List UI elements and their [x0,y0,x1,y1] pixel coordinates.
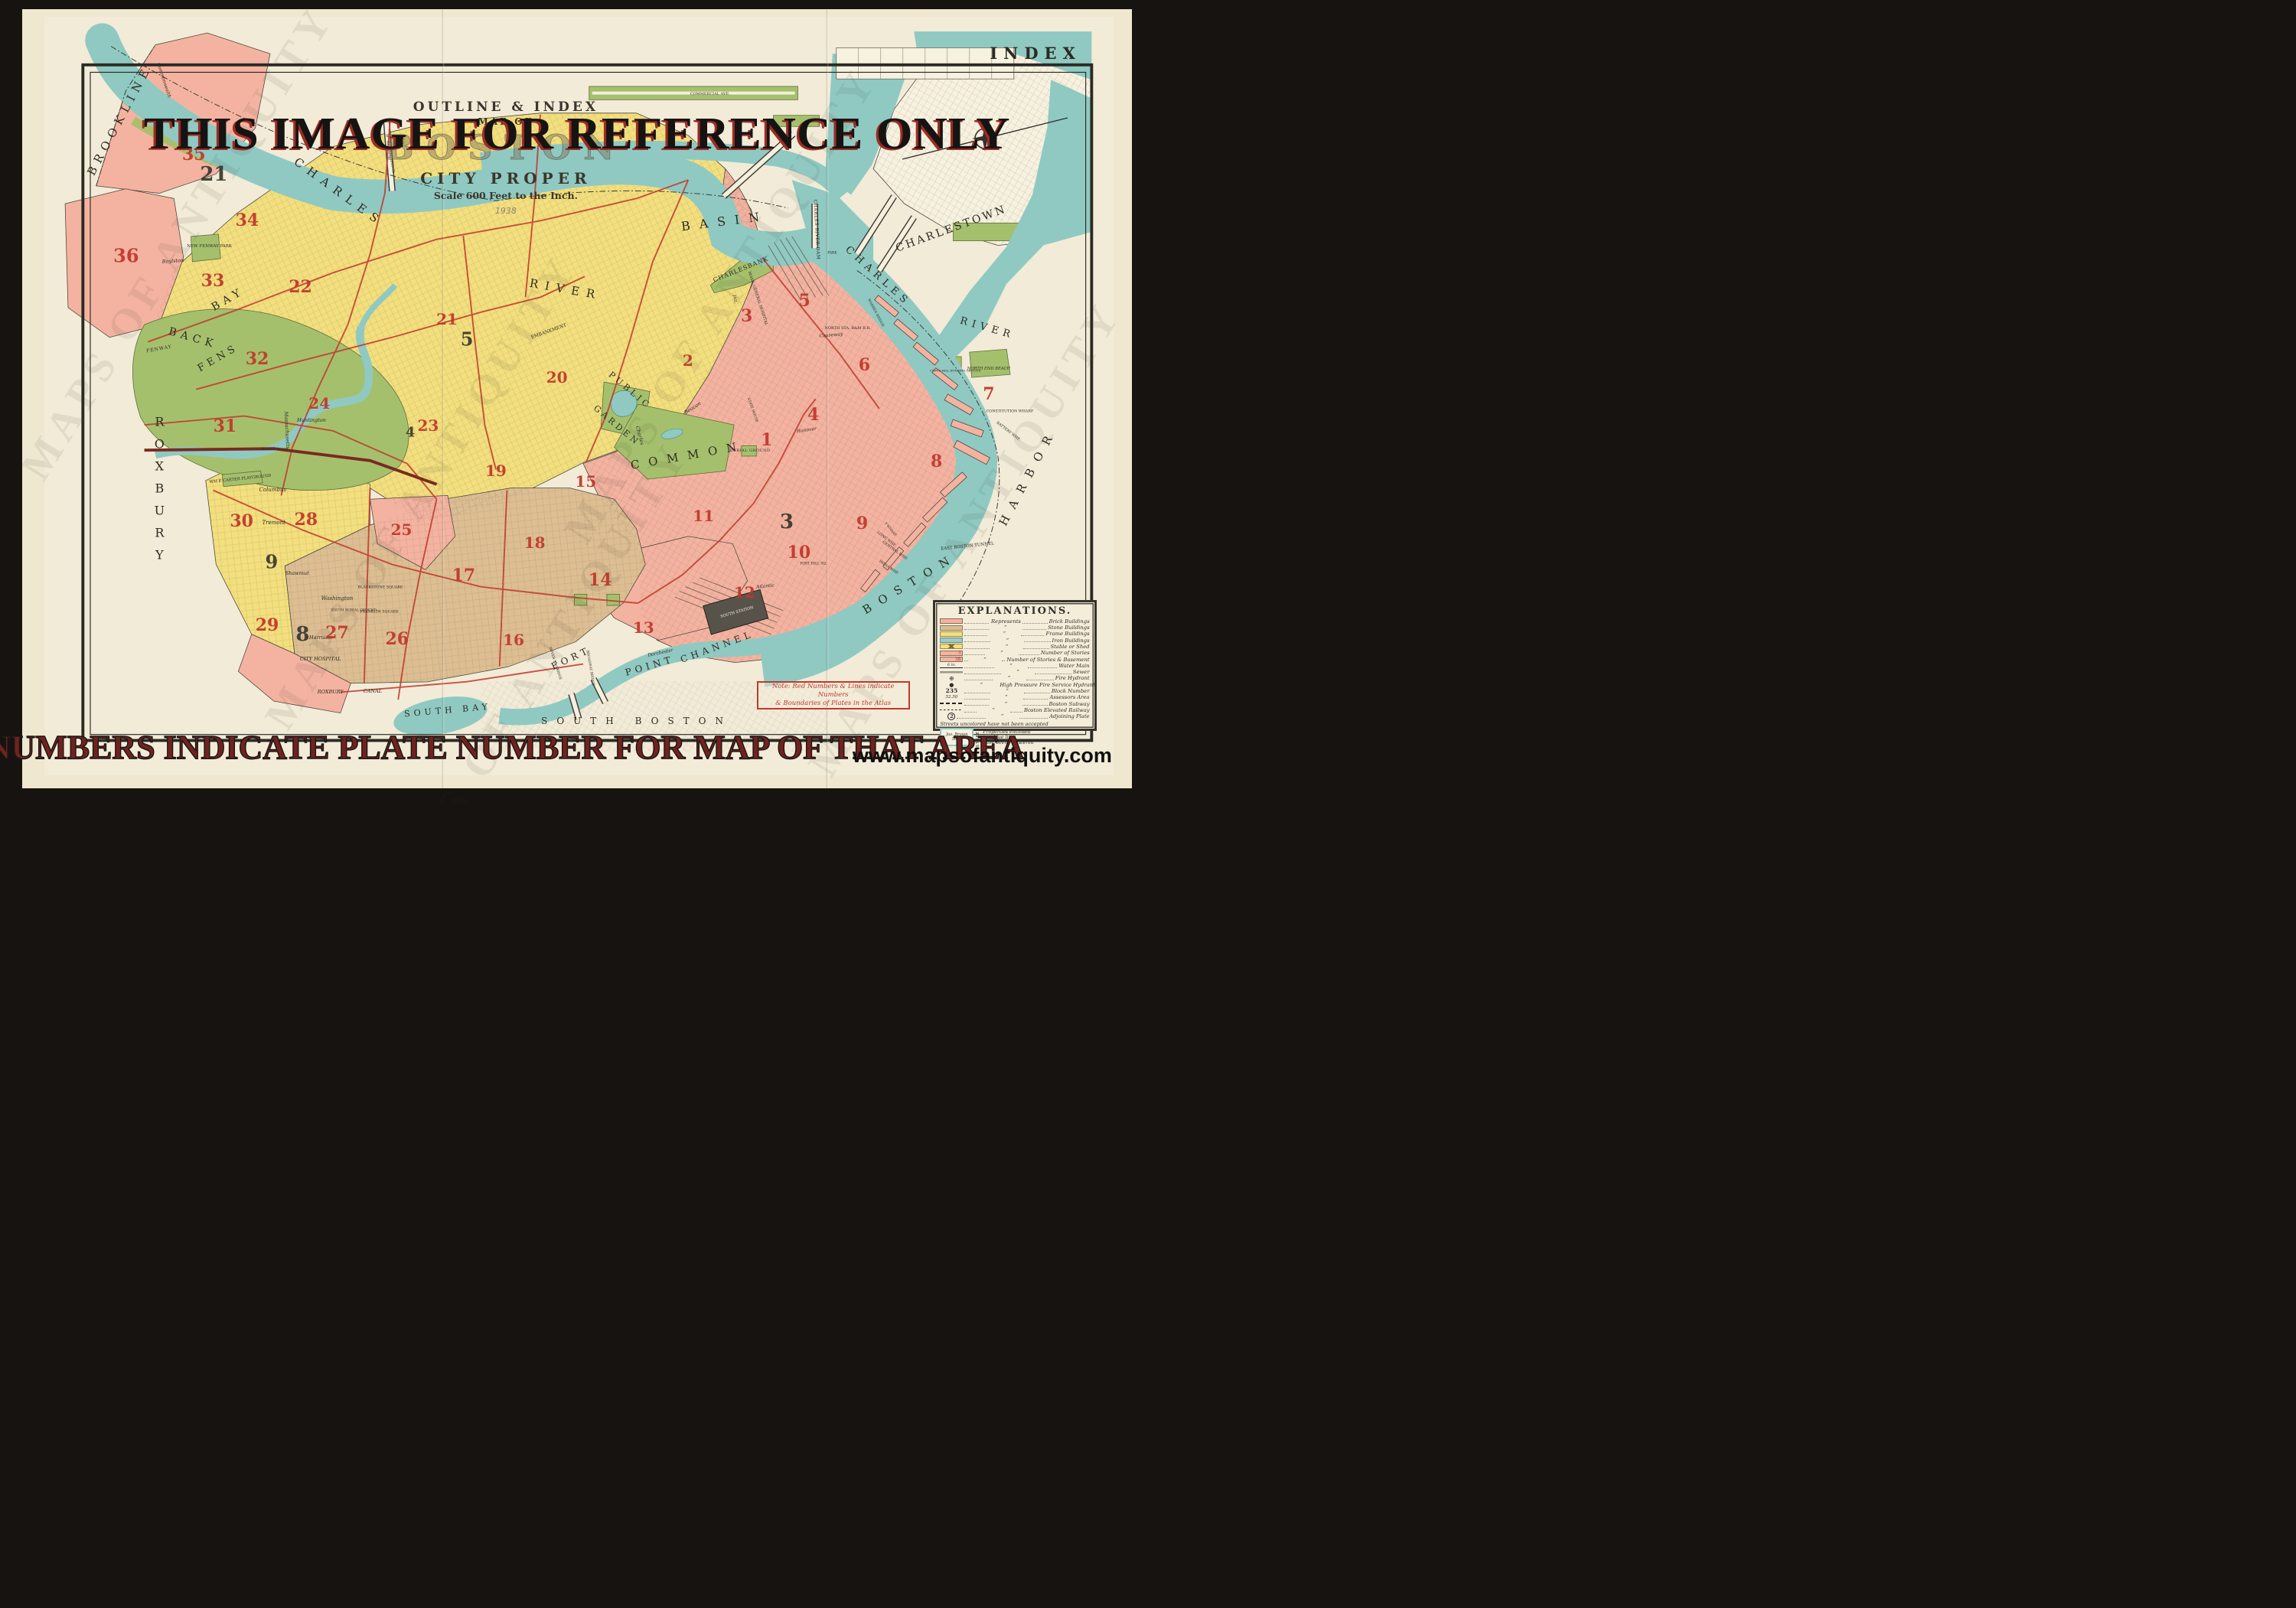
legend-label: Number of Stories [1041,650,1090,656]
legend-swatch-stories: 3 [940,651,963,656]
title-city-proper: CITY PROPER [345,169,667,188]
legend-title: EXPLANATIONS. [940,605,1089,617]
atlas-note-box: Note: Red Numbers & Lines indicate Numbe… [757,681,910,710]
legend-ditto: ” [996,663,1026,669]
watermark-url: www.mapsofantiquity.com [853,744,1112,768]
legend-swatch-hydrant: ⊕ [940,676,963,681]
legend-label: Boston Subway [1049,701,1090,707]
pencil-year: 1938 [345,206,667,216]
legend-rows: RepresentsBrick Buildings”Stone Building… [940,618,1089,720]
title-scale: Scale 600 Feet to the Inch. [345,190,667,201]
mystic-piers [836,47,1013,79]
park-blackstone-square [574,594,586,605]
legend-ditto: Represents [990,618,1021,625]
park-north-end-beach [969,349,1009,377]
scanned-map-page: BROOKLINECHARLESRIVERBASINCHARLESBANKCHA… [0,0,1148,804]
legend-swatch-block: 235 [940,688,963,693]
legend-swatch-sewer [940,670,963,675]
legend-ditto: ” [987,713,1018,719]
legend-row-fire-hydrant: ⊕”Fire Hydrant [940,675,1089,681]
legend-note-uncolored: Streets uncolored have not been accepted [940,721,1089,727]
legend-label: Block Number [1052,688,1090,694]
index-label: INDEX [990,44,1081,63]
legend-swatch-iron [940,638,963,643]
legend-ditto: ” [987,650,1017,656]
legend-ditto: ” [992,638,1022,644]
map-sheet-paper: BROOKLINECHARLESRIVERBASINCHARLESBANKCHA… [22,9,1133,789]
legend-row-block-number: 235”Block Number [940,688,1089,694]
legend-row-frame-buildings: ”Frame Buildings [940,631,1089,637]
legend-label: Stable or Shed [1051,644,1090,650]
legend-swatch-shed [940,644,963,649]
legend-row-high-pressure-fire-service-hydrant: ●”High Pressure Fire Service Hydrant [940,682,1089,688]
legend-row-boston-elevated-railway: ”Boston Elevated Railway [940,707,1089,713]
legend-label: Frame Buildings [1045,631,1089,637]
legend-row-number-of-stories: 3”Number of Stories [940,650,1089,656]
legend-row-adjoining-plate: 2”Adjoining Plate [940,713,1089,719]
legend-row-stone-buildings: ”Stone Buildings [940,625,1089,631]
legend-label: Sewer [1073,669,1090,675]
legend-row-iron-buildings: ”Iron Buildings [940,637,1089,643]
note-line-2: & Boundaries of Plates in the Atlas [775,700,891,708]
legend-ditto: ” [978,707,1009,713]
legend-label: High Pressure Fire Service Hydrant [1000,682,1094,688]
legend-row-assessors-area: 52.50”Assessors Area [940,694,1089,700]
watermark-reference-banner: THIS IMAGE FOR REFERENCE ONLY [0,107,1148,160]
legend-ditto: ” [992,688,1022,694]
legend-swatch-stone [940,625,963,631]
legend-row-number-of-stories-basement: 3B”Number of Stories & Basement [940,656,1089,662]
legend-label: Adjoining Plate [1049,713,1090,719]
legend-label: Fire Hydrant [1055,675,1090,681]
legend-ditto: ” [991,644,1022,650]
note-line-1: Note: Red Numbers & Lines indicate Numbe… [758,683,908,699]
legend-label: Boston Elevated Railway [1024,707,1090,713]
legend-swatch-storiesb: 3B [940,657,963,662]
legend-ditto: ” [1003,669,1033,675]
legend-ditto: ” [966,682,996,688]
legend-ditto: ” [990,701,1021,707]
legend-row-brick-buildings: RepresentsBrick Buildings [940,618,1089,625]
legend-swatch-frame [940,631,963,637]
legend-label: Water Main [1058,663,1089,669]
legend-swatch-hphydrant: ● [940,682,963,687]
legend-ditto: ” [970,657,1000,663]
legend-label: Iron Buildings [1052,638,1090,644]
explanations-legend: EXPLANATIONS. RepresentsBrick Buildings”… [933,600,1096,731]
legend-label: Assessors Area [1049,694,1089,700]
legend-swatch-watermain: 6 in. [940,663,963,668]
legend-ditto: ” [990,625,1021,631]
legend-ditto: ” [991,694,1022,700]
legend-label: Stone Buildings [1048,625,1090,631]
legend-label: Brick Buildings [1049,618,1090,625]
legend-row-stable-or-shed: ”Stable or Shed [940,644,1089,650]
park-burial-ground [741,445,755,456]
park-new-fenway [191,233,220,261]
legend-swatch-assessors: 52.50 [940,695,963,700]
legend-swatch-subway [940,701,963,706]
legend-ditto: ” [989,631,1019,637]
legend-row-water-main: 6 in.”Water Main [940,663,1089,669]
legend-swatch-adjplate: 2 [947,713,955,720]
legend-row-sewer: ”Sewer [940,669,1089,675]
legend-label: Number of Stories & Basement [1006,657,1089,663]
legend-swatch-brick [940,618,963,624]
legend-ditto: ” [994,675,1025,681]
legend-row-boston-subway: ”Boston Subway [940,700,1089,706]
